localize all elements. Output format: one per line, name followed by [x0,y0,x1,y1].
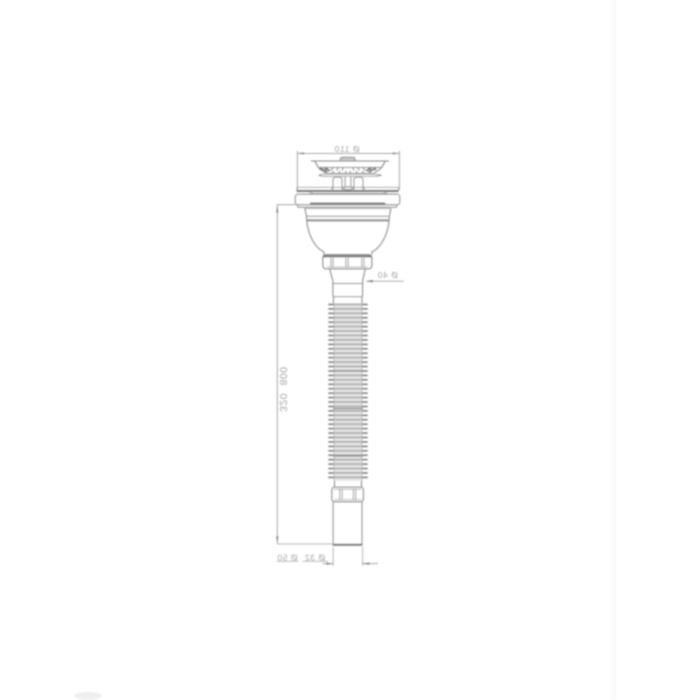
svg-text:320: 320 [277,393,289,412]
svg-text:Ø 110: Ø 110 [334,144,360,154]
svg-text:Ø 50: Ø 50 [277,552,298,562]
svg-text:800: 800 [277,366,289,385]
svg-text:Ø 40: Ø 40 [377,270,398,280]
svg-text:Ø 32: Ø 32 [304,552,325,562]
